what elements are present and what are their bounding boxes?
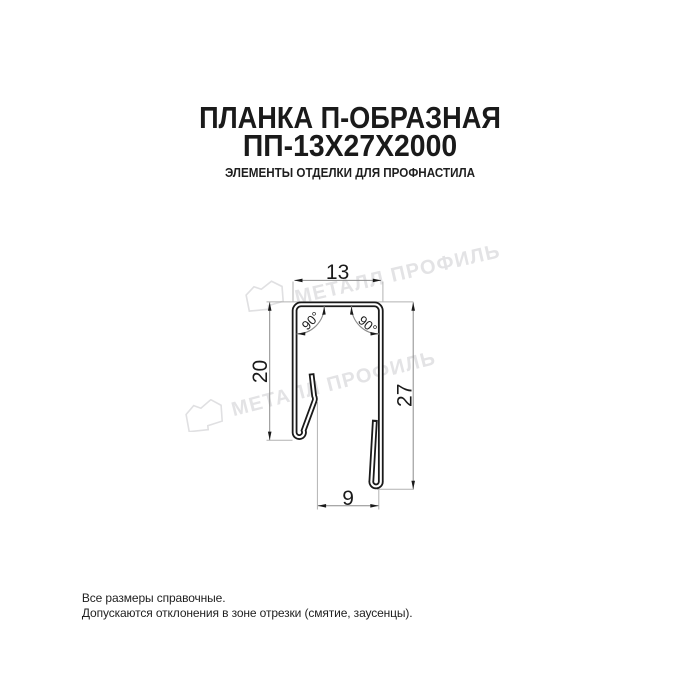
svg-text:20: 20 xyxy=(249,360,272,383)
svg-text:9: 9 xyxy=(342,487,354,510)
svg-text:27: 27 xyxy=(393,384,416,407)
svg-text:90°: 90° xyxy=(355,313,380,337)
svg-text:13: 13 xyxy=(326,261,349,284)
svg-text:90°: 90° xyxy=(299,309,324,334)
